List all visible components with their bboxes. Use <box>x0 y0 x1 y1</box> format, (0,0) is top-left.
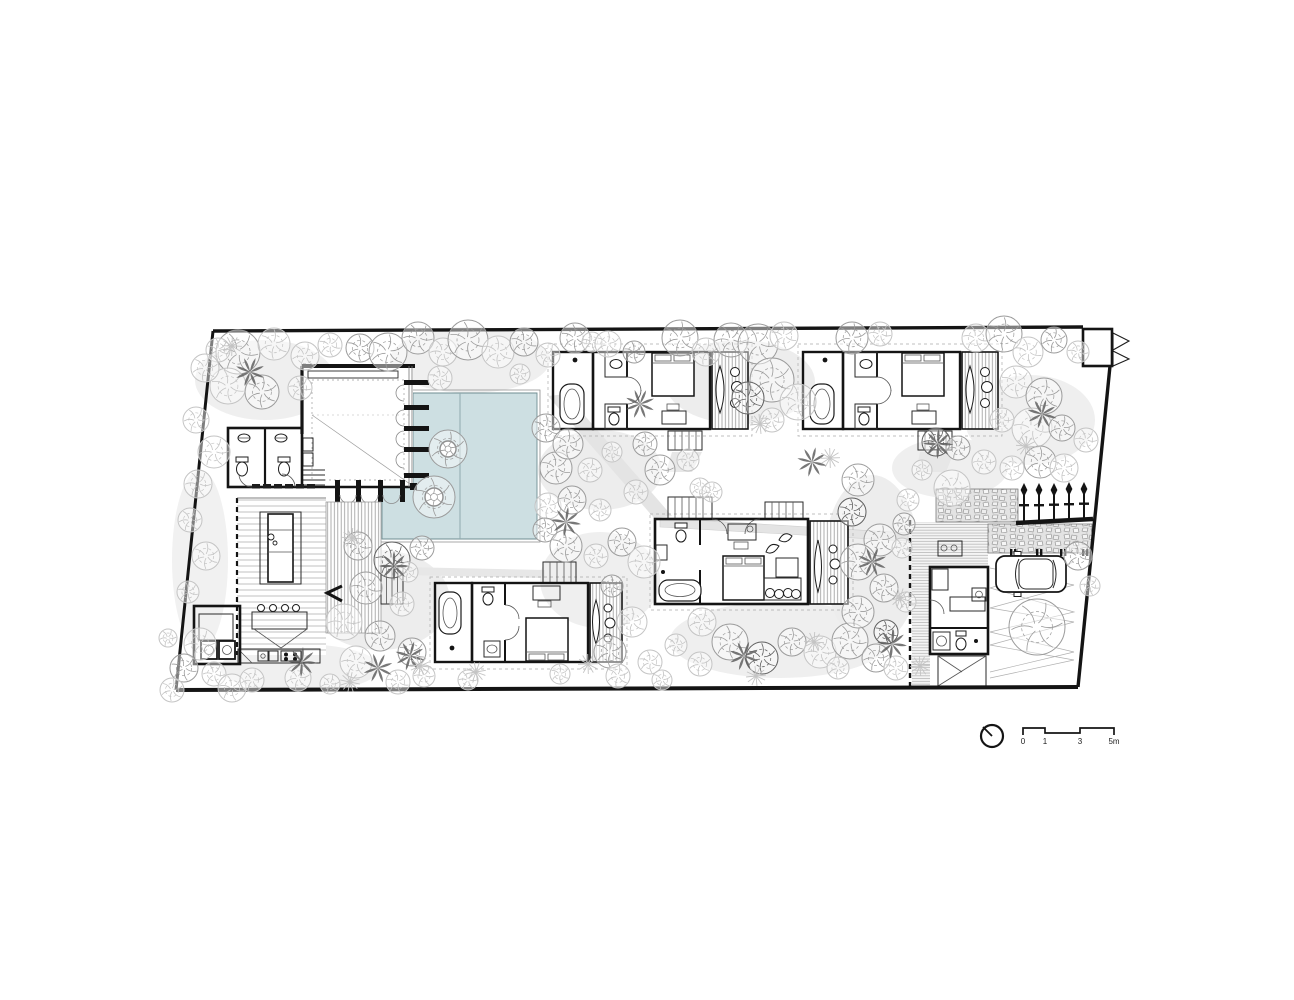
tree <box>645 455 675 485</box>
tree <box>595 331 621 357</box>
tree <box>836 322 868 354</box>
tree <box>893 513 915 535</box>
tree <box>1067 341 1089 363</box>
closet <box>932 569 948 590</box>
tree <box>584 544 608 568</box>
tree <box>946 436 970 460</box>
tree <box>177 581 199 603</box>
tree <box>589 499 611 521</box>
toilet <box>482 587 494 605</box>
sink <box>610 360 622 369</box>
gate-leaf <box>1113 351 1129 366</box>
sink <box>275 434 287 442</box>
tree <box>191 354 219 382</box>
tree <box>688 608 716 636</box>
tree <box>291 342 319 370</box>
site-plan-canvas: 0 1 3 5m <box>0 0 1294 1000</box>
tree <box>558 486 586 514</box>
tree <box>884 656 908 680</box>
daybed <box>764 578 801 600</box>
tree <box>602 442 622 462</box>
tree <box>510 328 538 356</box>
entry-steps <box>668 497 803 519</box>
toilet <box>609 413 619 425</box>
side-mirror <box>1014 552 1021 556</box>
tree <box>702 482 722 502</box>
tree <box>536 343 560 367</box>
entry-walkway <box>912 522 988 566</box>
shower-head <box>661 570 665 574</box>
tree <box>553 429 583 459</box>
scale-label-0: 0 <box>1021 737 1026 746</box>
tree <box>712 624 748 660</box>
tree <box>326 604 362 640</box>
deck-stone <box>829 576 837 584</box>
tree <box>606 664 630 688</box>
tree <box>842 596 874 628</box>
scale-bar: 0 1 3 5m <box>1021 728 1120 746</box>
tree <box>732 382 764 414</box>
tree <box>688 652 712 676</box>
tree <box>897 489 919 511</box>
north-indicator-icon <box>981 725 1003 747</box>
staff-room <box>930 567 988 654</box>
entry-fence <box>1016 482 1093 523</box>
tree <box>1074 428 1098 452</box>
tree <box>1064 542 1092 570</box>
tree <box>1050 454 1078 482</box>
tree <box>1080 576 1100 596</box>
guest-wc-block <box>228 428 302 487</box>
master-suite-pavilion <box>650 497 853 610</box>
tree <box>178 508 202 532</box>
tree <box>827 657 849 679</box>
tree <box>1049 415 1075 441</box>
tree <box>840 544 876 580</box>
appliance <box>972 588 986 601</box>
tree <box>429 430 467 468</box>
tree <box>550 530 582 562</box>
scale-label-1: 1 <box>1043 737 1048 746</box>
bed <box>723 556 764 600</box>
living-pavilion <box>302 366 429 504</box>
tree <box>183 407 209 433</box>
scale-label-3: 3 <box>1078 737 1083 746</box>
service-landing <box>938 656 986 686</box>
tree <box>350 572 382 604</box>
sink <box>933 632 950 650</box>
tree <box>677 449 699 471</box>
car <box>996 552 1066 597</box>
tree <box>240 668 264 692</box>
tree <box>550 664 570 684</box>
deck-stone <box>731 368 740 377</box>
tree <box>1013 337 1043 367</box>
tree <box>245 375 279 409</box>
tree <box>892 538 912 558</box>
tree <box>1009 599 1065 655</box>
tree <box>413 476 455 518</box>
tree <box>838 498 866 526</box>
tree <box>192 542 220 570</box>
tree <box>535 493 561 519</box>
shower-head <box>974 639 978 643</box>
tree <box>1041 327 1067 353</box>
tree <box>770 322 798 350</box>
deck-stone <box>830 559 840 569</box>
bench-seat <box>950 597 985 611</box>
dryer <box>219 641 235 659</box>
toilet <box>278 457 290 476</box>
scale-label-5m: 5m <box>1108 737 1119 746</box>
tree <box>320 674 340 694</box>
tree <box>482 336 514 368</box>
palm-tree <box>797 447 826 476</box>
tree <box>623 341 645 363</box>
lounge-chair <box>766 544 779 553</box>
palm-tree <box>379 551 409 581</box>
tree <box>962 324 990 352</box>
tree <box>258 328 290 360</box>
tree <box>160 678 184 702</box>
tree <box>624 480 648 504</box>
tree <box>912 460 932 480</box>
lounge-chair <box>779 534 792 542</box>
door-swing <box>930 600 944 614</box>
tree <box>510 364 530 384</box>
tree <box>778 628 806 656</box>
tree <box>780 384 816 420</box>
tree <box>344 532 372 560</box>
tree <box>159 629 177 647</box>
deck-stone <box>829 545 837 553</box>
tree <box>628 546 660 578</box>
tree <box>665 634 687 656</box>
tree <box>365 621 395 651</box>
toilet <box>236 457 248 476</box>
tree <box>1000 456 1024 480</box>
door-swing <box>627 377 641 391</box>
tree <box>413 665 435 687</box>
tree <box>594 636 626 668</box>
tree <box>601 575 623 597</box>
tree <box>870 574 898 602</box>
service-entry-area <box>910 482 1093 688</box>
tree <box>578 458 602 482</box>
toilet <box>956 631 966 650</box>
tree <box>369 333 407 371</box>
side-mirror <box>1014 593 1021 597</box>
tree <box>617 607 647 637</box>
tree <box>428 366 452 390</box>
tree <box>1012 408 1052 448</box>
tree <box>318 333 342 357</box>
tree <box>874 620 898 644</box>
bed <box>652 353 694 396</box>
sink <box>484 641 500 657</box>
gate-leaf <box>1113 333 1129 350</box>
tree <box>288 376 312 400</box>
tree <box>184 470 212 498</box>
tree <box>990 408 1014 432</box>
deck-stone <box>605 618 615 628</box>
toilet <box>675 523 687 542</box>
entry-steps <box>668 431 702 450</box>
villa-site-plan-drawing: 0 1 3 5m <box>0 0 1294 1000</box>
shower-head <box>573 358 578 363</box>
door-swing <box>505 605 519 619</box>
tree <box>198 436 230 468</box>
bed <box>526 618 568 661</box>
tree <box>934 470 970 506</box>
tree <box>652 670 672 690</box>
tree <box>633 432 657 456</box>
tree <box>390 592 414 616</box>
door-swing <box>505 626 519 640</box>
deck-stone <box>604 604 612 612</box>
sink <box>238 434 250 442</box>
tree <box>972 450 996 474</box>
side-table <box>776 558 798 577</box>
tree <box>842 464 874 496</box>
tree <box>868 322 892 346</box>
shower-head <box>450 646 455 651</box>
tree <box>410 536 434 560</box>
island-sink <box>268 534 274 540</box>
